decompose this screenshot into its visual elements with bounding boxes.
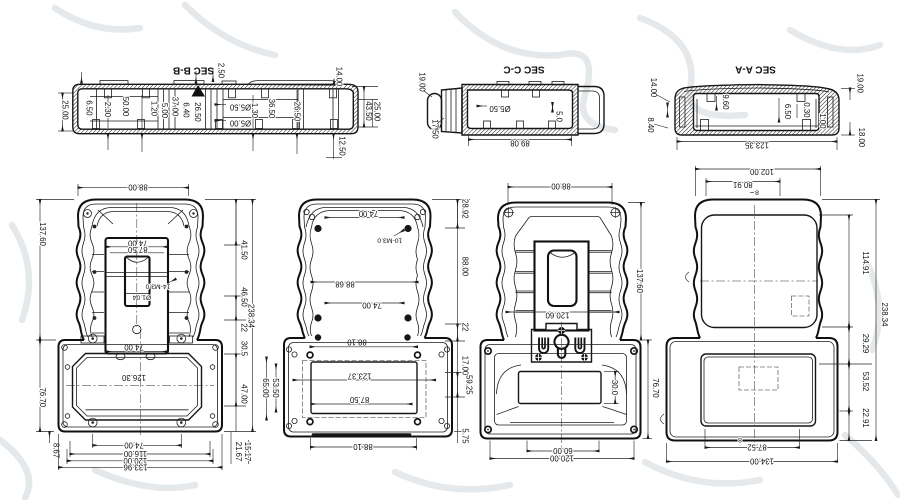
- svg-text:137.60: 137.60: [38, 222, 47, 247]
- svg-text:41.50: 41.50: [240, 240, 249, 260]
- svg-text:80.91: 80.91: [733, 180, 753, 189]
- svg-text:88.68: 88.68: [335, 279, 355, 288]
- svg-text:Ø1.04: Ø1.04: [133, 294, 152, 301]
- svg-text:5.75: 5.75: [461, 428, 470, 444]
- svg-text:8: 8: [755, 189, 759, 196]
- svg-text:17.00: 17.00: [461, 356, 470, 376]
- svg-text:30.5: 30.5: [240, 341, 249, 357]
- svg-text:1.00: 1.00: [818, 113, 827, 129]
- svg-text:15.17: 15.17: [243, 442, 252, 462]
- svg-text:SEC A-A: SEC A-A: [735, 64, 776, 75]
- svg-text:19.00: 19.00: [418, 72, 427, 92]
- svg-text:22: 22: [461, 323, 470, 332]
- svg-text:59.25: 59.25: [465, 375, 474, 395]
- svg-text:102.00: 102.00: [749, 167, 774, 176]
- svg-text:8.40: 8.40: [646, 117, 655, 133]
- svg-text:88.00: 88.00: [551, 182, 571, 191]
- svg-text:88.00: 88.00: [461, 257, 470, 277]
- svg-text:8: 8: [738, 436, 742, 443]
- svg-text:SEC B-B: SEC B-B: [173, 65, 214, 76]
- svg-text:1.20: 1.20: [150, 101, 159, 117]
- svg-text:37.00: 37.00: [171, 97, 180, 117]
- svg-text:0.30: 0.30: [802, 102, 811, 118]
- svg-text:30.0: 30.0: [610, 380, 619, 396]
- svg-text:114.91: 114.91: [861, 251, 870, 274]
- svg-text:126.30: 126.30: [121, 373, 146, 382]
- svg-text:74.00: 74.00: [124, 343, 144, 352]
- svg-text:43.50: 43.50: [364, 101, 373, 121]
- svg-text:76.70: 76.70: [38, 388, 47, 408]
- svg-text:28.92: 28.92: [461, 199, 470, 219]
- svg-text:25.00: 25.00: [373, 102, 382, 122]
- svg-text:14.00: 14.00: [335, 67, 344, 87]
- svg-text:133.96: 133.96: [124, 462, 148, 471]
- svg-text:36.50: 36.50: [267, 99, 276, 119]
- svg-text:9.60: 9.60: [721, 94, 730, 110]
- svg-text:8.67: 8.67: [52, 443, 61, 458]
- svg-text:87.50: 87.50: [349, 395, 369, 404]
- svg-text:29.29: 29.29: [861, 334, 870, 354]
- svg-text:123.37: 123.37: [348, 371, 372, 380]
- svg-text:26.50: 26.50: [193, 102, 202, 122]
- svg-text:Ø5.00: Ø5.00: [229, 119, 251, 128]
- svg-text:26.50: 26.50: [293, 102, 302, 122]
- svg-text:89.08: 89.08: [510, 138, 530, 147]
- svg-text:14-M3.0: 14-M3.0: [145, 283, 170, 290]
- svg-text:2.50: 2.50: [217, 63, 226, 79]
- svg-text:6.50: 6.50: [85, 100, 94, 116]
- svg-text:137.60: 137.60: [635, 269, 644, 294]
- svg-text:74.00: 74.00: [362, 301, 382, 310]
- svg-text:SEC C-C: SEC C-C: [503, 64, 544, 75]
- svg-text:88.10: 88.10: [347, 338, 367, 347]
- svg-text:88.10: 88.10: [353, 442, 373, 451]
- svg-text:14.00: 14.00: [649, 78, 658, 98]
- svg-text:238.34: 238.34: [246, 304, 255, 329]
- svg-text:238.34: 238.34: [880, 303, 889, 328]
- svg-text:5.0: 5.0: [555, 111, 564, 123]
- svg-text:Ø5.50: Ø5.50: [229, 103, 251, 112]
- svg-text:6.50: 6.50: [783, 104, 792, 120]
- svg-text:47.00: 47.00: [240, 384, 249, 404]
- svg-text:74.00: 74.00: [124, 440, 144, 449]
- svg-text:5.00: 5.00: [160, 103, 169, 119]
- svg-text:10-M3.0: 10-M3.0: [377, 236, 402, 243]
- svg-text:50.00: 50.00: [121, 97, 130, 117]
- svg-text:22.91: 22.91: [861, 408, 870, 428]
- svg-text:134.00: 134.00: [749, 457, 774, 466]
- svg-text:25.00: 25.00: [60, 100, 69, 120]
- svg-text:76.70: 76.70: [651, 378, 660, 398]
- svg-text:123.35: 123.35: [744, 140, 769, 149]
- svg-text:Ø5.50: Ø5.50: [489, 104, 511, 113]
- svg-text:120.60: 120.60: [545, 311, 570, 320]
- svg-text:17.50: 17.50: [431, 119, 440, 139]
- svg-text:21.67: 21.67: [234, 442, 243, 462]
- svg-text:18.00: 18.00: [857, 128, 866, 148]
- svg-text:53.50: 53.50: [271, 378, 280, 398]
- svg-text:88.00: 88.00: [128, 182, 148, 191]
- svg-text:87.50: 87.50: [127, 245, 147, 254]
- svg-text:1.30: 1.30: [250, 103, 259, 119]
- svg-text:6.40: 6.40: [182, 102, 191, 118]
- svg-text:120.00: 120.00: [549, 454, 574, 463]
- svg-text:65.00: 65.00: [261, 378, 270, 398]
- svg-text:87.52: 87.52: [747, 443, 767, 452]
- svg-text:53.52: 53.52: [861, 372, 870, 392]
- svg-text:74.00: 74.00: [358, 209, 378, 218]
- svg-text:2.30: 2.30: [103, 102, 112, 118]
- svg-text:12.50: 12.50: [338, 136, 347, 156]
- svg-text:19.00: 19.00: [855, 73, 864, 93]
